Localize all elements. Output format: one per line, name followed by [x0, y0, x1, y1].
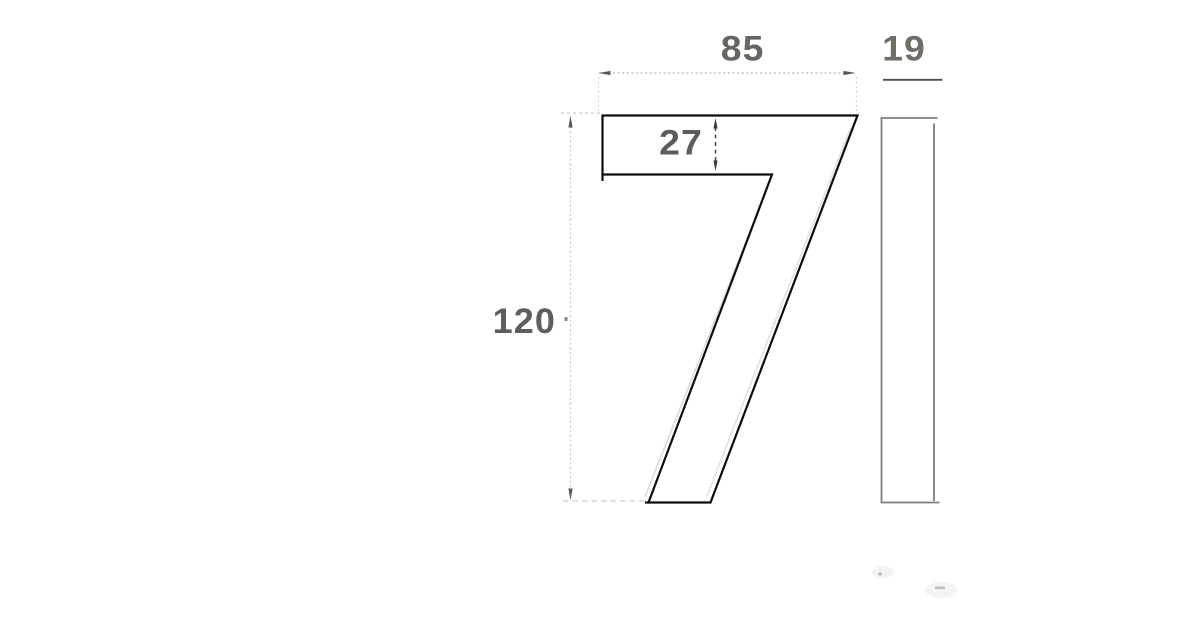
svg-text:120: 120 [493, 301, 556, 341]
svg-text:85: 85 [721, 28, 765, 68]
svg-text:19: 19 [882, 28, 926, 68]
svg-text:27: 27 [659, 122, 703, 162]
